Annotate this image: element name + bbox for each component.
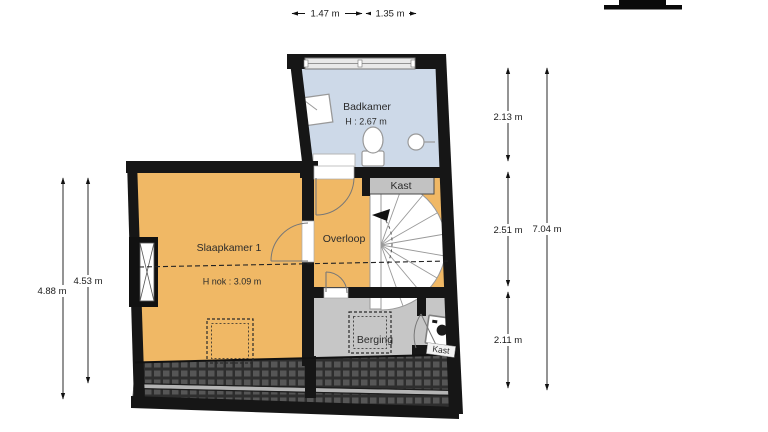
slaapkamer-left-window bbox=[129, 237, 158, 307]
dim-right-1: 2.13 m bbox=[493, 112, 522, 123]
slaapkamer-height-label: H nok : 3.09 m bbox=[203, 276, 262, 286]
slaapkamer-label: Slaapkamer 1 bbox=[197, 242, 262, 254]
bathroom-top-window bbox=[304, 58, 415, 69]
dim-right-total: 7.04 m bbox=[532, 224, 561, 235]
berging-label: Berging bbox=[357, 334, 393, 346]
floorplan-canvas: Badkamer H : 2.67 m Slaapkamer 1 H nok :… bbox=[0, 0, 768, 432]
badkamer-height-label: H : 2.67 m bbox=[345, 116, 387, 126]
dim-left-outer: 4.88 m bbox=[37, 286, 66, 297]
badkamer-label: Badkamer bbox=[343, 101, 391, 113]
kast-top-label: Kast bbox=[390, 180, 411, 192]
dim-top-1: 1.47 m bbox=[310, 9, 339, 20]
toilet bbox=[362, 127, 384, 166]
logo-fragment bbox=[604, 0, 682, 10]
dim-left-inner: 4.53 m bbox=[73, 276, 102, 287]
dim-right-3: 2.11 m bbox=[494, 335, 522, 346]
overloop-label: Overloop bbox=[323, 233, 366, 245]
dim-right-2: 2.51 m bbox=[493, 225, 522, 236]
dim-top-2: 1.35 m bbox=[375, 9, 404, 20]
